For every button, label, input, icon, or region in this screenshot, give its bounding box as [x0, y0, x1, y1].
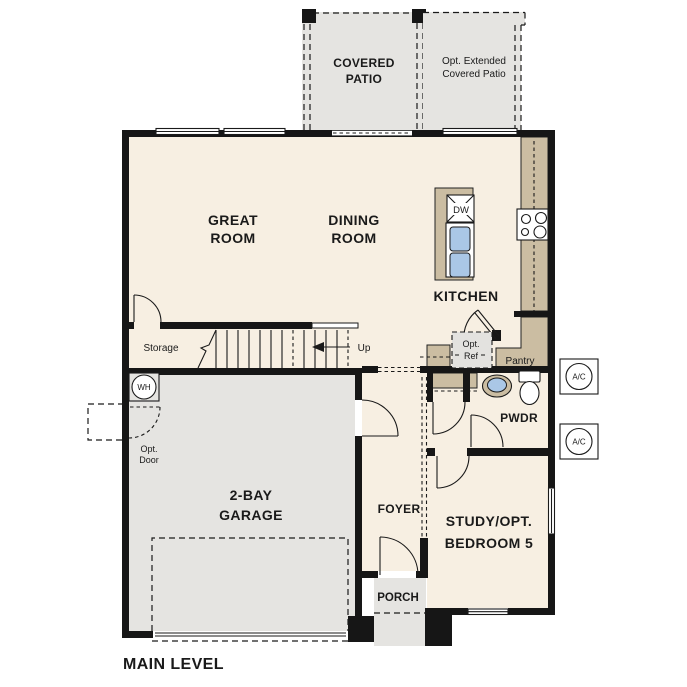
great-room-label: GREAT [208, 212, 258, 228]
study-label: STUDY/OPT. [446, 513, 532, 529]
ac-label-1: A/C [572, 373, 586, 382]
powder-sink-fixture [483, 375, 512, 397]
pantry-label: Pantry [506, 356, 535, 367]
cooktop-fixture [517, 209, 548, 240]
study-label2: BEDROOM 5 [445, 535, 533, 551]
porch-label: PORCH [377, 592, 419, 604]
patio-post-left [302, 9, 316, 23]
covered-patio-label2: PATIO [346, 72, 382, 86]
garage-label2: GARAGE [219, 507, 283, 523]
opt-ref-label2: Ref [464, 351, 479, 361]
opt-patio-label: Opt. Extended [442, 56, 506, 67]
garage-floor [129, 375, 355, 631]
plan-title: MAIN LEVEL [123, 656, 224, 673]
toilet-fixture [519, 371, 540, 405]
kitchen-label: KITCHEN [433, 288, 498, 304]
powder-room-label: PWDR [500, 411, 538, 425]
dishwasher-label: DW [453, 205, 469, 216]
storage-label: Storage [143, 343, 178, 354]
foyer-label: FOYER [378, 502, 421, 516]
floor-plan-page: COVERED PATIO Opt. Extended Covered Pati… [0, 0, 687, 687]
floor-plan-drawing: COVERED PATIO Opt. Extended Covered Pati… [0, 0, 687, 687]
garage-door-opening [153, 631, 348, 638]
porch-floor [374, 578, 426, 646]
opt-ref-box [452, 332, 492, 368]
stair-railing [312, 323, 358, 328]
opt-patio-label2: Covered Patio [442, 69, 506, 80]
great-room-label2: ROOM [210, 230, 255, 246]
ac-label-2: A/C [572, 438, 586, 447]
garage-label: 2-BAY [230, 487, 273, 503]
dining-room-label2: ROOM [331, 230, 376, 246]
opt-door-outline [88, 404, 124, 440]
stairs-up-label: Up [358, 343, 371, 354]
opt-door-label: Opt. [140, 444, 157, 454]
dining-room-label: DINING [328, 212, 379, 228]
covered-patio-label: COVERED [333, 56, 394, 70]
island-sink-fixture [446, 223, 474, 277]
water-heater-label: WH [137, 383, 151, 392]
opt-door-label2: Door [139, 455, 159, 465]
opt-ref-label: Opt. [462, 339, 479, 349]
